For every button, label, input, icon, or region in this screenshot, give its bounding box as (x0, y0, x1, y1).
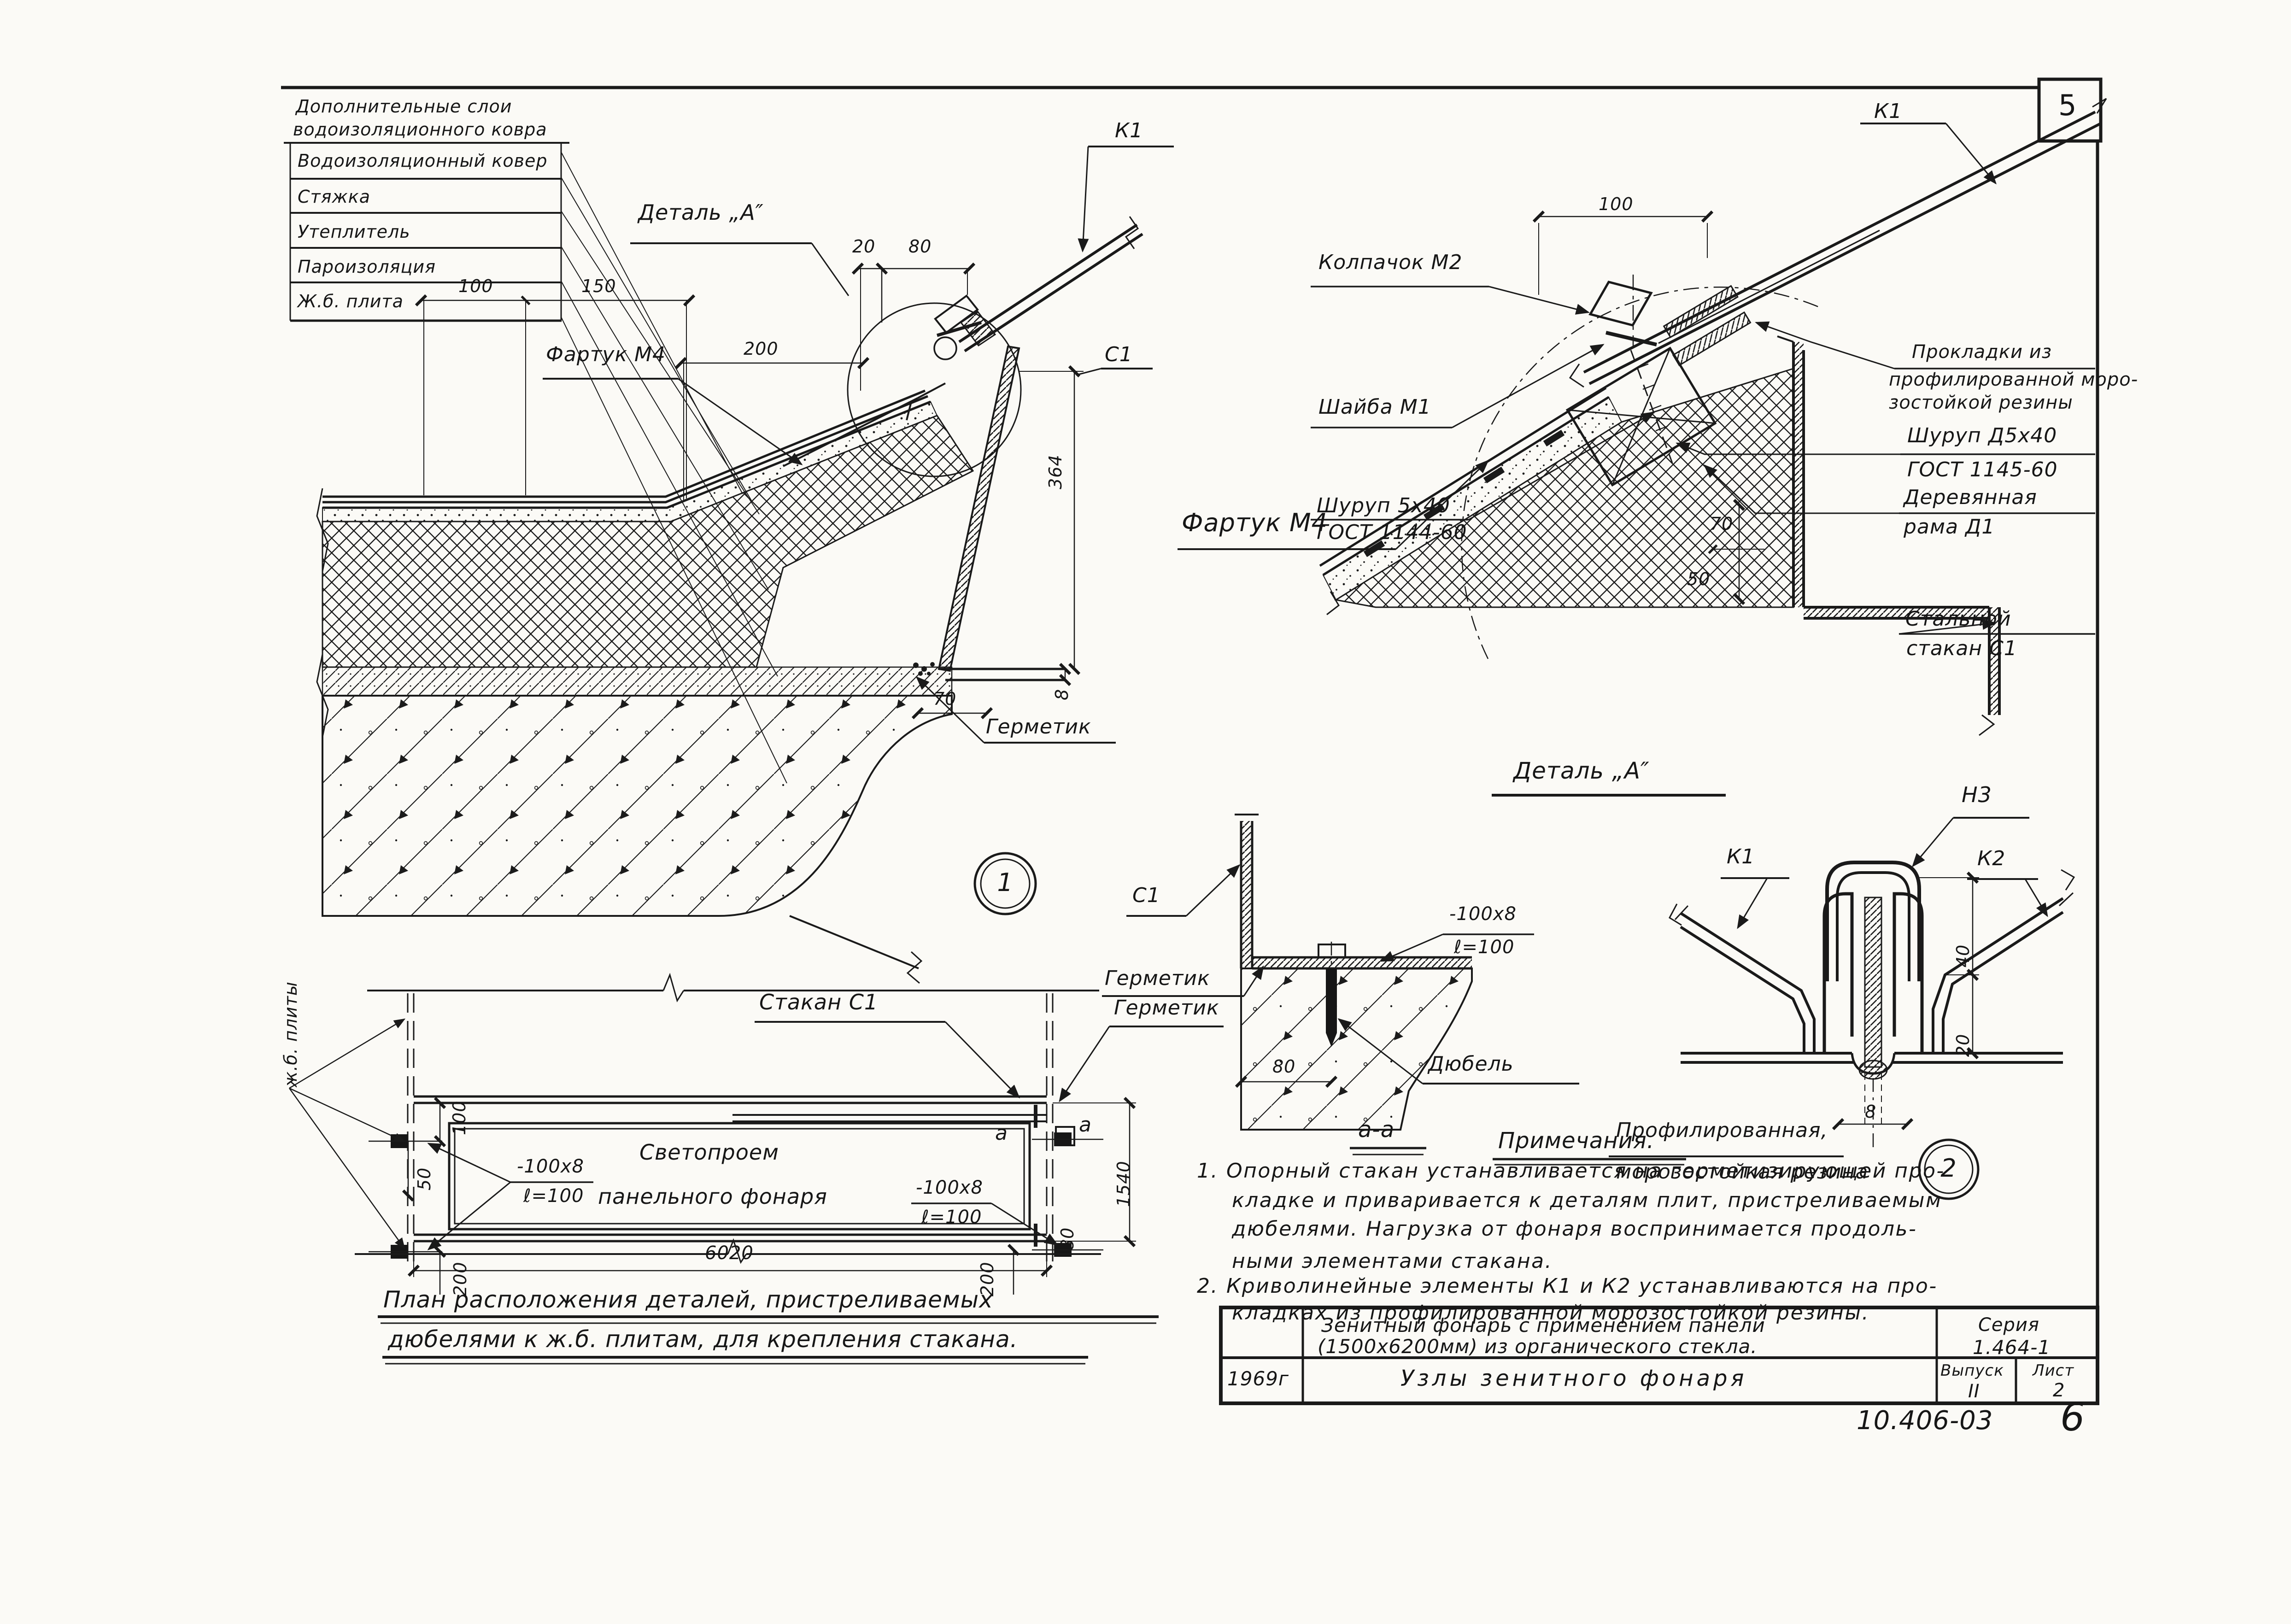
detail2-dim-40: 40 (1954, 944, 1972, 967)
titleblock-series-label: Серия (1978, 1316, 2039, 1334)
footer-document-code: 10.406-03 (1857, 1408, 1993, 1434)
detail-a-dim-70: 70 (1710, 515, 1733, 533)
titleblock-subject-line1: Зенитный фонарь с применением панели (1321, 1316, 1765, 1335)
node1-section (317, 217, 1143, 983)
detail-a-gasket-line3: зостойкой резины (1889, 393, 2073, 412)
detail-a-cup-line1: Стальной (1905, 609, 2011, 629)
plan-caption-line2: дюбелями к ж.б. плитам, для крепления ст… (388, 1328, 1018, 1351)
node1-dim-80: 80 (908, 238, 932, 255)
titleblock-issue-label: Выпуск (1940, 1363, 2004, 1378)
detail-a-screw2-gost: ГОСТ 1145-60 (1907, 460, 2058, 480)
plan-cup-label: Стакан С1 (759, 991, 878, 1013)
detail-a-screw2-label: Шуруп Д5х40 (1907, 426, 2057, 446)
detail-a-gasket-line1: Прокладки из (1912, 343, 2052, 361)
detail2-k2-label: К2 (1977, 849, 2005, 869)
notes-item2-number: 2. (1197, 1276, 1219, 1296)
notes-item1-number: 1. (1197, 1161, 1219, 1181)
node1-dim-200: 200 (744, 340, 779, 358)
node1-sealant-label: Герметик (986, 717, 1091, 737)
plan-section-mark-top: а (995, 1123, 1008, 1143)
plan-section-mark-bottom: а (1079, 1115, 1092, 1135)
legend-row-slab: Ж.б. плита (298, 293, 404, 310)
plan-strip-right-num: -100х8 (916, 1178, 983, 1197)
node1-dim-20: 20 (852, 238, 875, 255)
section-aa-strip-num: -100х8 (1449, 905, 1517, 923)
detail2-dim-20: 20 (1954, 1034, 1972, 1057)
node1-dim-150: 150 (581, 277, 616, 295)
detail-a-k1-label: К1 (1874, 101, 1902, 122)
titleblock-sheet-label: Лист (2033, 1363, 2074, 1378)
legend-row-vapour: Пароизоляция (298, 258, 436, 276)
section-aa-drawing (1235, 815, 1472, 1130)
plan-dim-50: 50 (416, 1167, 433, 1190)
plan-opening-line1: Светопроем (639, 1142, 779, 1163)
node1-k1-label: К1 (1115, 121, 1143, 141)
plan-caption-line1: План расположения деталей, пристреливаем… (383, 1288, 993, 1311)
notes-item2-line1: Криволинейные элементы К1 и К2 устанавли… (1226, 1276, 1938, 1296)
node1-c1-label: С1 (1105, 345, 1133, 365)
detail-a-frame-line2: рама Д1 (1904, 517, 1995, 537)
detail-a-screw1-label: Шуруп 5х40 (1317, 496, 1450, 516)
node1-detail-callout: Деталь „А″ (638, 202, 764, 223)
node1-dim-364: 364 (1047, 454, 1064, 489)
plan-strip-left-len: ℓ=100 (523, 1187, 584, 1205)
plan-plates-label: ж.б. плиты (282, 981, 299, 1087)
detail-a-dim-50: 50 (1687, 570, 1710, 588)
plan-dim-1540: 1540 (1115, 1161, 1132, 1207)
plan-sealant-label: Герметик (1114, 998, 1219, 1018)
notes-item1-line1: Опорный стакан устанавливается на гермет… (1226, 1161, 1945, 1181)
detail-a-washer-label: Шайба М1 (1318, 397, 1431, 417)
plan-opening-line2: панельного фонаря (598, 1186, 827, 1207)
detail-a-cup-line2: стакан С1 (1906, 639, 2017, 659)
section-aa-dim-80: 80 (1272, 1058, 1295, 1075)
legend-header-line2: водоизоляционного ковра (293, 121, 547, 138)
titleblock-series-value: 1.464-1 (1973, 1338, 2051, 1357)
plan-strip-left-num: -100х8 (517, 1157, 584, 1176)
section-aa-title: а-а (1358, 1119, 1395, 1141)
detail-a-gasket-line2: профилированной моро- (1889, 370, 2138, 389)
notes-title: Примечания. (1498, 1130, 1654, 1152)
notes-item1-line3: дюбелями. Нагрузка от фонаря воспринимае… (1232, 1219, 1917, 1239)
detail-a-apron-label: Фартук М4 (1182, 510, 1328, 535)
node1-dim-8: 8 (1053, 689, 1071, 700)
section-aa-dowel-label: Дюбель (1428, 1054, 1514, 1074)
notes-item1-line4: ными элементами стакана. (1232, 1251, 1553, 1272)
legend-row-insulation: Утеплитель (298, 223, 410, 240)
detail2-dim-8: 8 (1865, 1103, 1876, 1120)
node1-badge: 1 (997, 870, 1013, 895)
titleblock-year: 1969г (1227, 1369, 1289, 1389)
node1-apron-label: Фартук М4 (546, 345, 666, 365)
section-aa-sealant-label: Герметик (1105, 968, 1210, 989)
plan-dim-6020: 6020 (705, 1244, 754, 1262)
legend-header-line1: Дополнительные слои (296, 98, 512, 115)
section-aa-strip-len: ℓ=100 (1454, 938, 1514, 956)
plan-strip-right-len: ℓ=100 (921, 1208, 982, 1226)
legend-row-screed: Стяжка (298, 188, 370, 205)
plan-dim-80: 80 (1059, 1227, 1076, 1250)
footer-page-number: 6 (2060, 1398, 2085, 1436)
section-aa-c1-label: С1 (1132, 885, 1160, 906)
detail-a-frame-line1: Деревянная (1904, 487, 2037, 508)
detail2-n3-label: Н3 (1962, 784, 1992, 805)
drawing-linework (0, 0, 2291, 1624)
titleblock-sheet-title: Узлы зенитного фонаря (1400, 1367, 1747, 1389)
node1-dim-70: 70 (933, 690, 956, 708)
legend-row-waterproof: Водоизоляционный ковер (298, 152, 548, 170)
drawing-sheet: 5 Дополнительные слои водоизоляционного … (0, 0, 2291, 1624)
titleblock-subject-line2: (1500х6200мм) из органического стекла. (1318, 1337, 1758, 1356)
sheet-number-badge: 5 (2058, 91, 2077, 120)
titleblock-issue-value: II (1968, 1382, 1980, 1401)
detail-a-dim-100: 100 (1599, 195, 1634, 213)
plan-dim-100: 100 (451, 1100, 468, 1135)
detail-a-title: Деталь „А″ (1513, 759, 1650, 782)
detail2-k1-label: К1 (1727, 847, 1755, 867)
node1-dim-100: 100 (458, 277, 493, 295)
notes-item1-line2: кладке и приваривается к деталям плит, п… (1232, 1190, 1942, 1211)
detail-a-cap-label: Колпачок М2 (1318, 252, 1462, 273)
detail-a-screw1-gost: ГОСТ 1144-60 (1317, 522, 1467, 543)
